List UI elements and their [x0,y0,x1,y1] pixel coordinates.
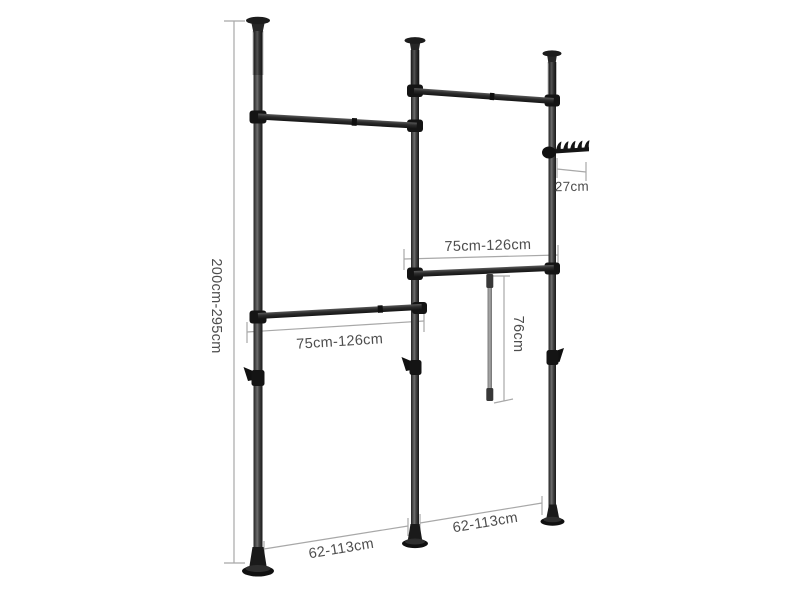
hook-rack-clamp [542,147,556,159]
lower-left-bar-telescope-joint [378,305,383,313]
middle-pole-top-sleeve [410,50,420,90]
diagram-canvas: 200cm-295cm 75cm-126cm 75cm-126cm 76cm 2… [0,0,800,600]
dim-hook-rack [557,158,586,181]
upper-left-bar-telescope-joint [352,118,357,126]
left-floor-dimension-label: 62-113cm [308,536,376,562]
rack-dimension-diagram: 200cm-295cm 75cm-126cm 75cm-126cm 76cm 2… [0,0,800,600]
hook-prong-icon [584,140,590,149]
drop-rod-dimension-label: 76cm [510,316,526,353]
left-pole-lock-clamp [252,370,265,386]
right-pole [541,50,565,525]
hook-prong-icon [570,141,576,150]
left-pole-top-sleeve [253,31,264,75]
right-bar-dimension-label: 75cm-126cm [444,237,531,255]
drop-rod-bottom-cap [486,388,493,401]
dim-drop-rod [492,276,513,403]
upper-left-hanging-bar [258,113,417,130]
height-dimension-label: 200cm-295cm [208,258,224,353]
dim-height [224,21,245,563]
right-pole-foot-top [544,517,562,523]
middle-pole-foot-top [405,539,425,545]
hook-prong-icon [556,142,562,151]
left-bar-dimension-label: 75cm-126cm [296,331,384,352]
hook-prong-icon [577,141,583,150]
right-pole-lock-clamp [547,350,559,365]
right-pole-tube [549,62,557,510]
hook-prong-icon [563,141,569,150]
drop-rod-top-cap [486,274,493,288]
left-pole-ceiling-plate [246,17,270,25]
middle-pole-ceiling-plate [405,37,426,44]
middle-pole-lock-clamp [410,360,422,375]
upper-right-hanging-bar [414,87,554,104]
drop-rod-tube [488,277,493,401]
right-floor-dimension-label: 62-113cm [452,510,520,536]
middle-pole [402,37,429,548]
left-pole-foot-top [246,565,271,572]
middle-right-hanging-bar [414,265,554,277]
drop-rod [486,274,493,401]
upper-right-bar-telescope-joint [490,93,495,101]
left-pole-tube [254,31,263,554]
hook-rack-dimension-label: 27cm [555,179,589,195]
right-pole-top-sleeve [548,62,558,100]
left-pole [242,17,274,577]
lower-left-hanging-bar [258,303,422,320]
right-pole-ceiling-plate [543,50,562,56]
